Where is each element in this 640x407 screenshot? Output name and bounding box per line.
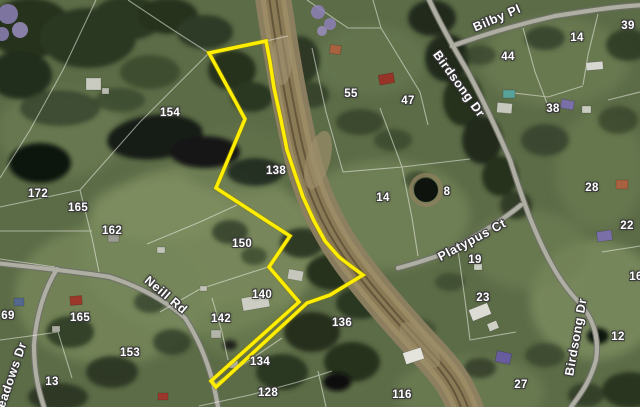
dam-with-ring	[411, 175, 441, 205]
satellite-map-canvas[interactable]: 154 138 172 165 162 150 140 142 165 153 …	[0, 0, 640, 407]
satellite-imagery	[0, 0, 640, 407]
